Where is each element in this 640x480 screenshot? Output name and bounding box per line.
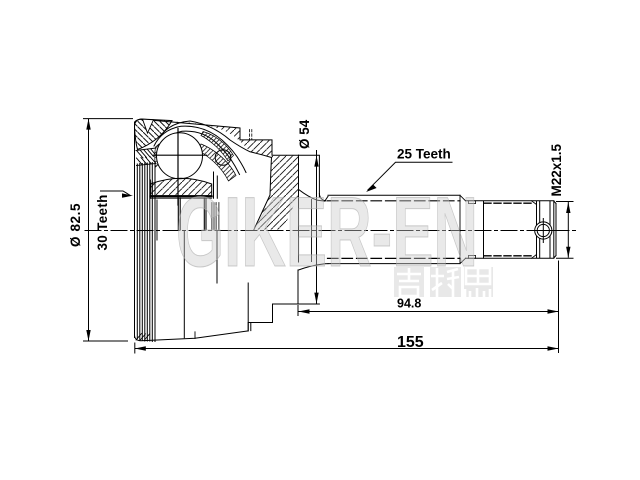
svg-text:94.8: 94.8 bbox=[397, 297, 421, 311]
svg-text:Ø 54: Ø 54 bbox=[297, 119, 312, 149]
svg-text:25 Teeth: 25 Teeth bbox=[397, 147, 451, 162]
svg-text:Ø 82.5: Ø 82.5 bbox=[68, 203, 83, 247]
svg-text:155: 155 bbox=[397, 334, 424, 351]
svg-text:M22x1.5: M22x1.5 bbox=[549, 143, 564, 196]
svg-text:30 Teeth: 30 Teeth bbox=[95, 194, 110, 250]
